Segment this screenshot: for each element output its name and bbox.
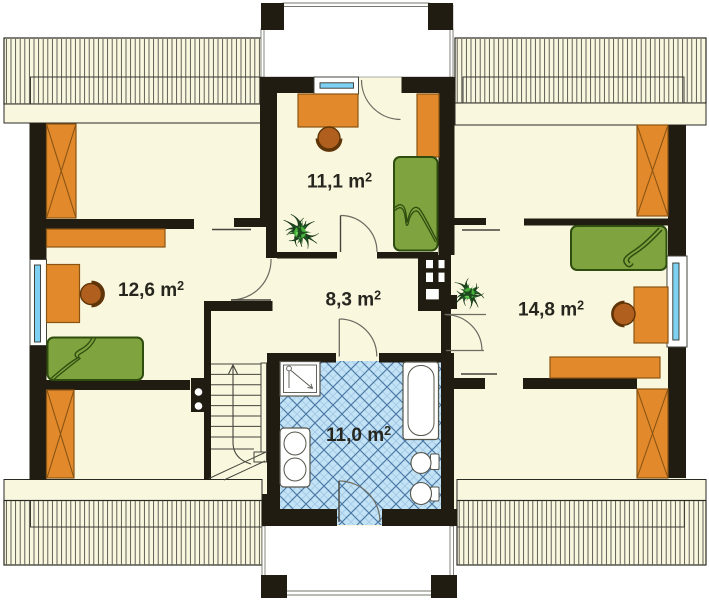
svg-text:11,1 m2: 11,1 m2: [307, 171, 372, 193]
svg-text:12,6 m2: 12,6 m2: [118, 279, 184, 301]
svg-text:8,3 m2: 8,3 m2: [326, 289, 382, 311]
svg-text:11,0 m2: 11,0 m2: [326, 424, 391, 446]
svg-text:14,8 m2: 14,8 m2: [518, 299, 584, 321]
